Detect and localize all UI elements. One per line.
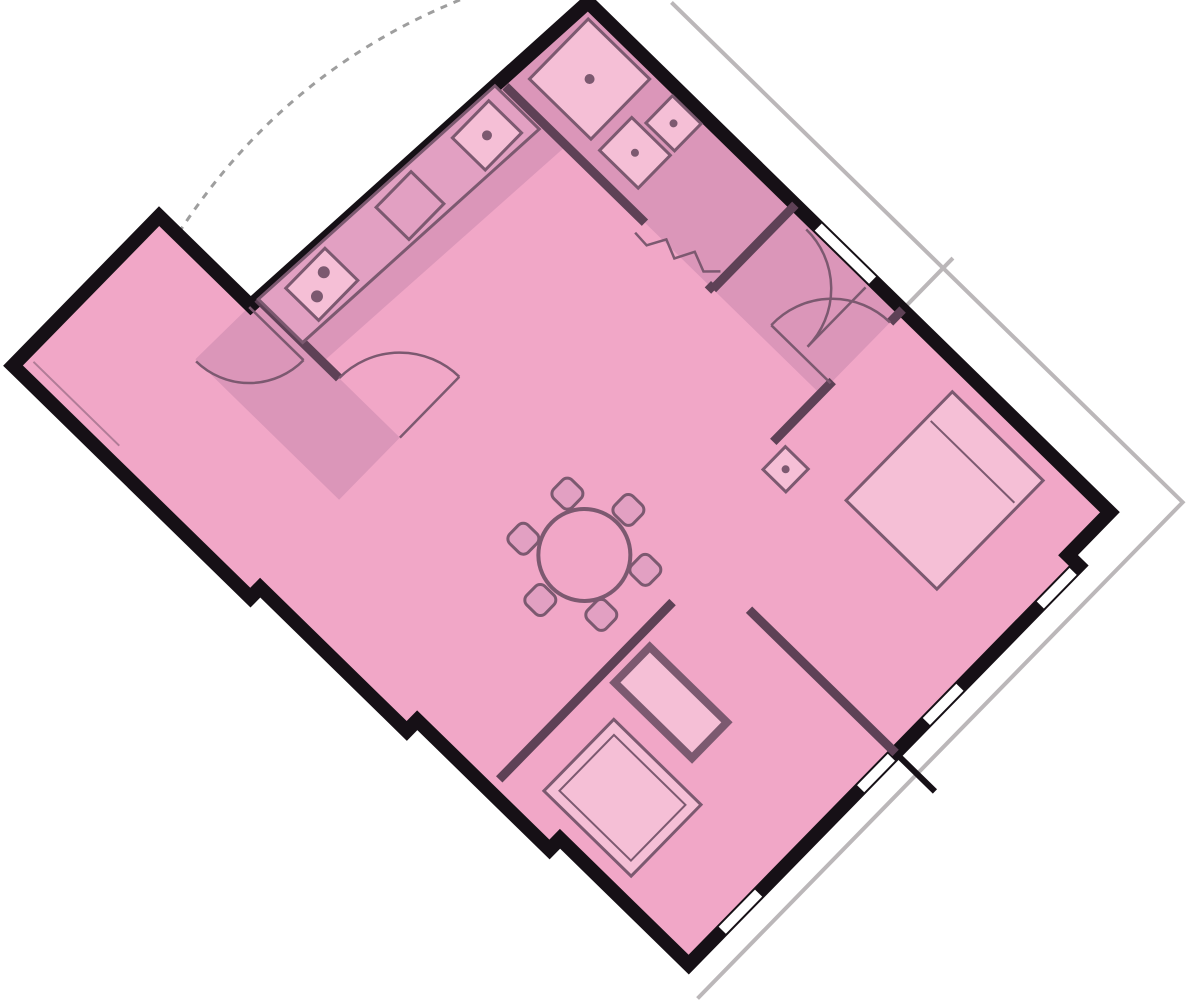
floor-plan-svg [0, 0, 1186, 1000]
rotated-plan-group [13, 0, 1186, 1000]
balcony-divider-wall [896, 753, 935, 791]
railing-tick [905, 258, 953, 307]
floor-plan-image [0, 0, 1186, 1000]
